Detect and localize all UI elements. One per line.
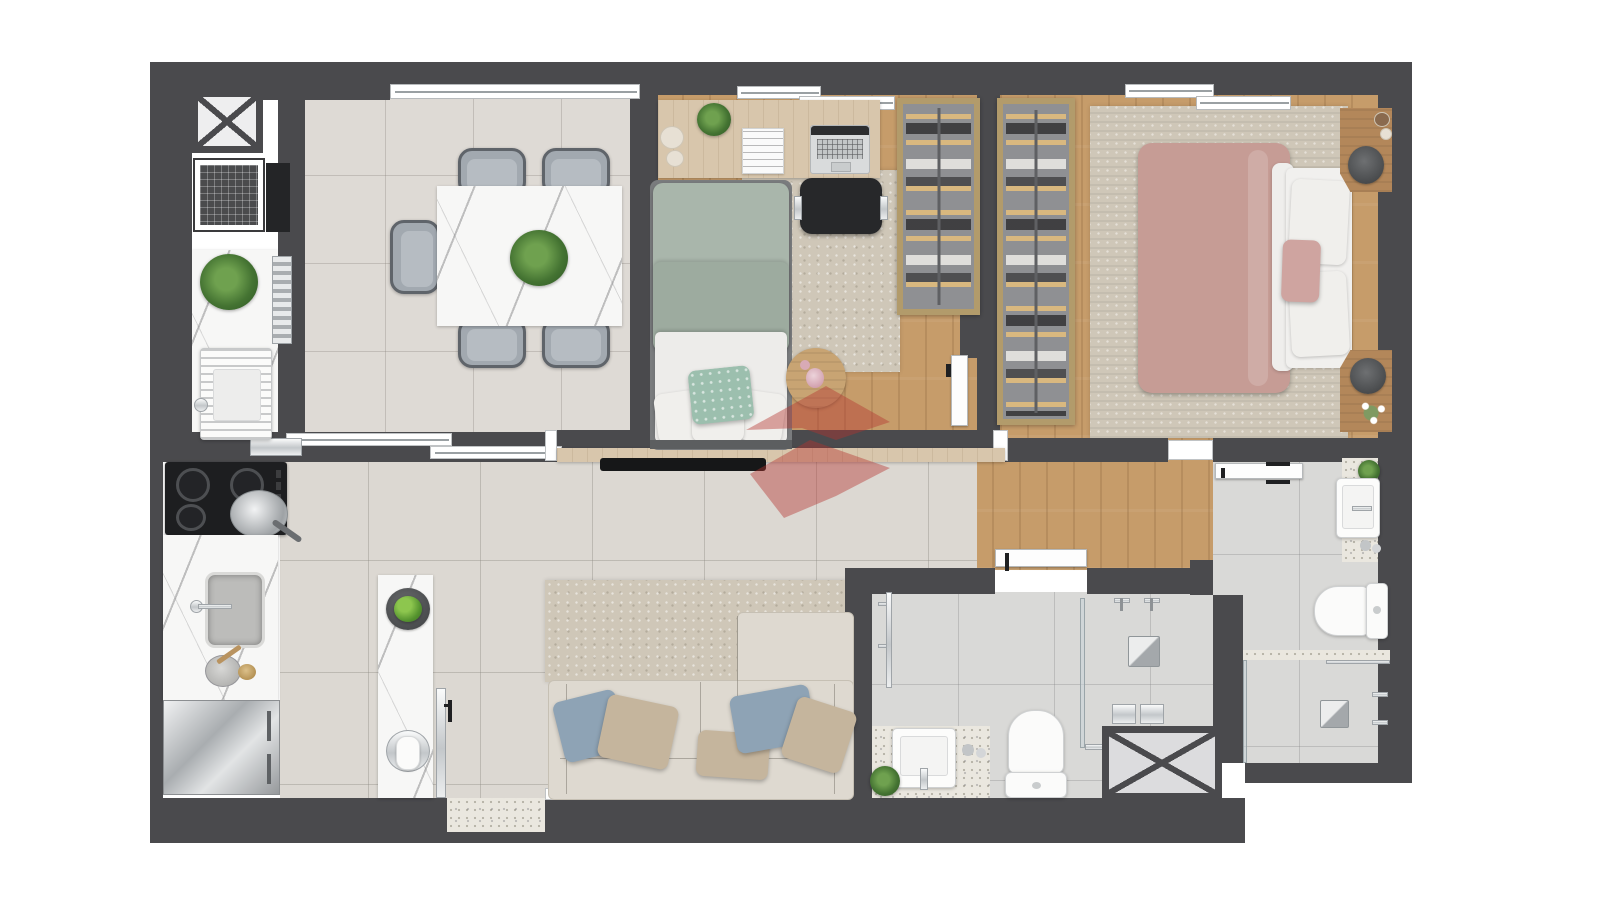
social-toilet-bowl <box>1008 710 1064 774</box>
ensuite-shower-glass-top <box>1326 660 1390 664</box>
desk-candle-small <box>666 150 684 167</box>
ensuite-shower-drain <box>1320 700 1349 728</box>
ensuite-towel-hook <box>1266 462 1290 466</box>
nightstand-candle-2 <box>1380 128 1392 140</box>
desk-plant <box>697 103 731 136</box>
wall-bath-top-left <box>845 568 995 594</box>
laundry-faucet <box>194 398 208 412</box>
social-shower-glass <box>1080 598 1085 748</box>
social-bathroom-door-handle <box>1005 553 1009 571</box>
nightstand-flowers <box>1354 396 1392 430</box>
single-bed-accent-pillow <box>687 365 754 425</box>
ensuite-shower-sill <box>1243 650 1390 660</box>
magazine <box>742 128 784 174</box>
kitchen-sink <box>205 572 265 648</box>
double-bed-accent-pillow <box>1281 239 1321 302</box>
laptop <box>810 125 870 174</box>
balcony-threshold <box>447 798 545 832</box>
nightstand-top-tray <box>1348 146 1384 184</box>
balcony-door-handle-nub <box>444 704 452 707</box>
master-window-pane2 <box>1196 96 1291 110</box>
social-towel-rail <box>886 592 892 688</box>
wall-bedroom2-door-stub <box>960 312 977 358</box>
ensuite-door-handle <box>1221 468 1225 478</box>
desk-candle-large <box>660 126 684 149</box>
double-bed-duvet-fold <box>1248 150 1268 386</box>
dining-sliding-partition-b <box>430 446 562 459</box>
nightstand-bottom-tray <box>1350 358 1386 394</box>
social-sink-faucet <box>920 768 928 790</box>
drying-rack <box>272 256 292 344</box>
dining-chair-5 <box>390 220 440 294</box>
wall-bottom-right <box>1245 763 1412 783</box>
wall-service-divider <box>278 62 305 445</box>
social-shower-stem-2 <box>1150 598 1153 611</box>
office-chair <box>800 178 882 234</box>
wall-ensuite-left-stub <box>1190 560 1213 595</box>
social-shower-drain <box>1128 636 1160 667</box>
ensuite-cup-2 <box>1372 544 1381 553</box>
social-cup-1 <box>962 744 974 756</box>
single-bed-footboard <box>650 440 792 449</box>
frying-pan <box>230 490 288 538</box>
ensuite-shower-handle-1 <box>1372 692 1388 697</box>
tv <box>600 458 766 471</box>
social-toilet-tank <box>1005 772 1067 798</box>
duct-shaft-bottom <box>1102 726 1222 800</box>
ensuite-shower-glass-left <box>1243 660 1247 763</box>
master-entrance-sill <box>1168 440 1213 460</box>
wall-left-lower <box>150 432 163 843</box>
social-bathroom-plant <box>870 766 900 796</box>
tv-wall-cap-left <box>545 430 557 461</box>
pink-glass <box>806 368 824 388</box>
dining-sliding-partition-a <box>286 433 452 446</box>
bedroom2-door-handle <box>946 364 951 377</box>
laundry-tank-sink <box>200 348 272 440</box>
wall-bottom <box>150 798 1245 843</box>
duct-shaft-top <box>191 90 263 153</box>
nightstand-candle-1 <box>1374 112 1390 127</box>
master-wardrobe <box>997 98 1075 425</box>
bedroom2-wardrobe <box>897 98 980 315</box>
ensuite-towel-hook-2 <box>1266 480 1290 484</box>
social-shower-stem-1 <box>1120 598 1123 611</box>
ensuite-toilet-tank <box>1366 583 1388 639</box>
kitchen-pass-through <box>250 438 302 456</box>
refrigerator <box>163 700 280 795</box>
fruit-bowl-apples <box>394 596 422 622</box>
wall-ensuite-top <box>1213 438 1412 462</box>
wall-master-bottom <box>1000 438 1168 462</box>
dining-window-band <box>390 84 640 99</box>
social-cup-2 <box>976 748 986 758</box>
pink-cup <box>800 360 810 370</box>
white-vase <box>396 736 420 770</box>
ensuite-sink-faucet <box>1352 506 1372 511</box>
kitchen-faucet-spout <box>198 604 232 609</box>
ensuite-shower-handle-2 <box>1372 720 1388 725</box>
ensuite-cup-1 <box>1360 540 1371 551</box>
shaft-access-bar-2 <box>1140 704 1164 724</box>
dining-centerpiece-plant <box>510 230 568 286</box>
floor-plan-canvas <box>0 0 1600 900</box>
service-plant <box>200 254 258 310</box>
bedroom2-door <box>951 355 968 426</box>
washer-side-panel <box>266 163 290 232</box>
wall-left-upper <box>150 62 192 432</box>
washing-machine <box>193 158 265 232</box>
shaft-access-bar-1 <box>1112 704 1136 724</box>
ensuite-toilet-bowl <box>1314 586 1370 636</box>
social-towel-hook-2 <box>878 644 887 648</box>
social-towel-hook-1 <box>878 602 887 606</box>
small-bowl <box>238 664 256 680</box>
